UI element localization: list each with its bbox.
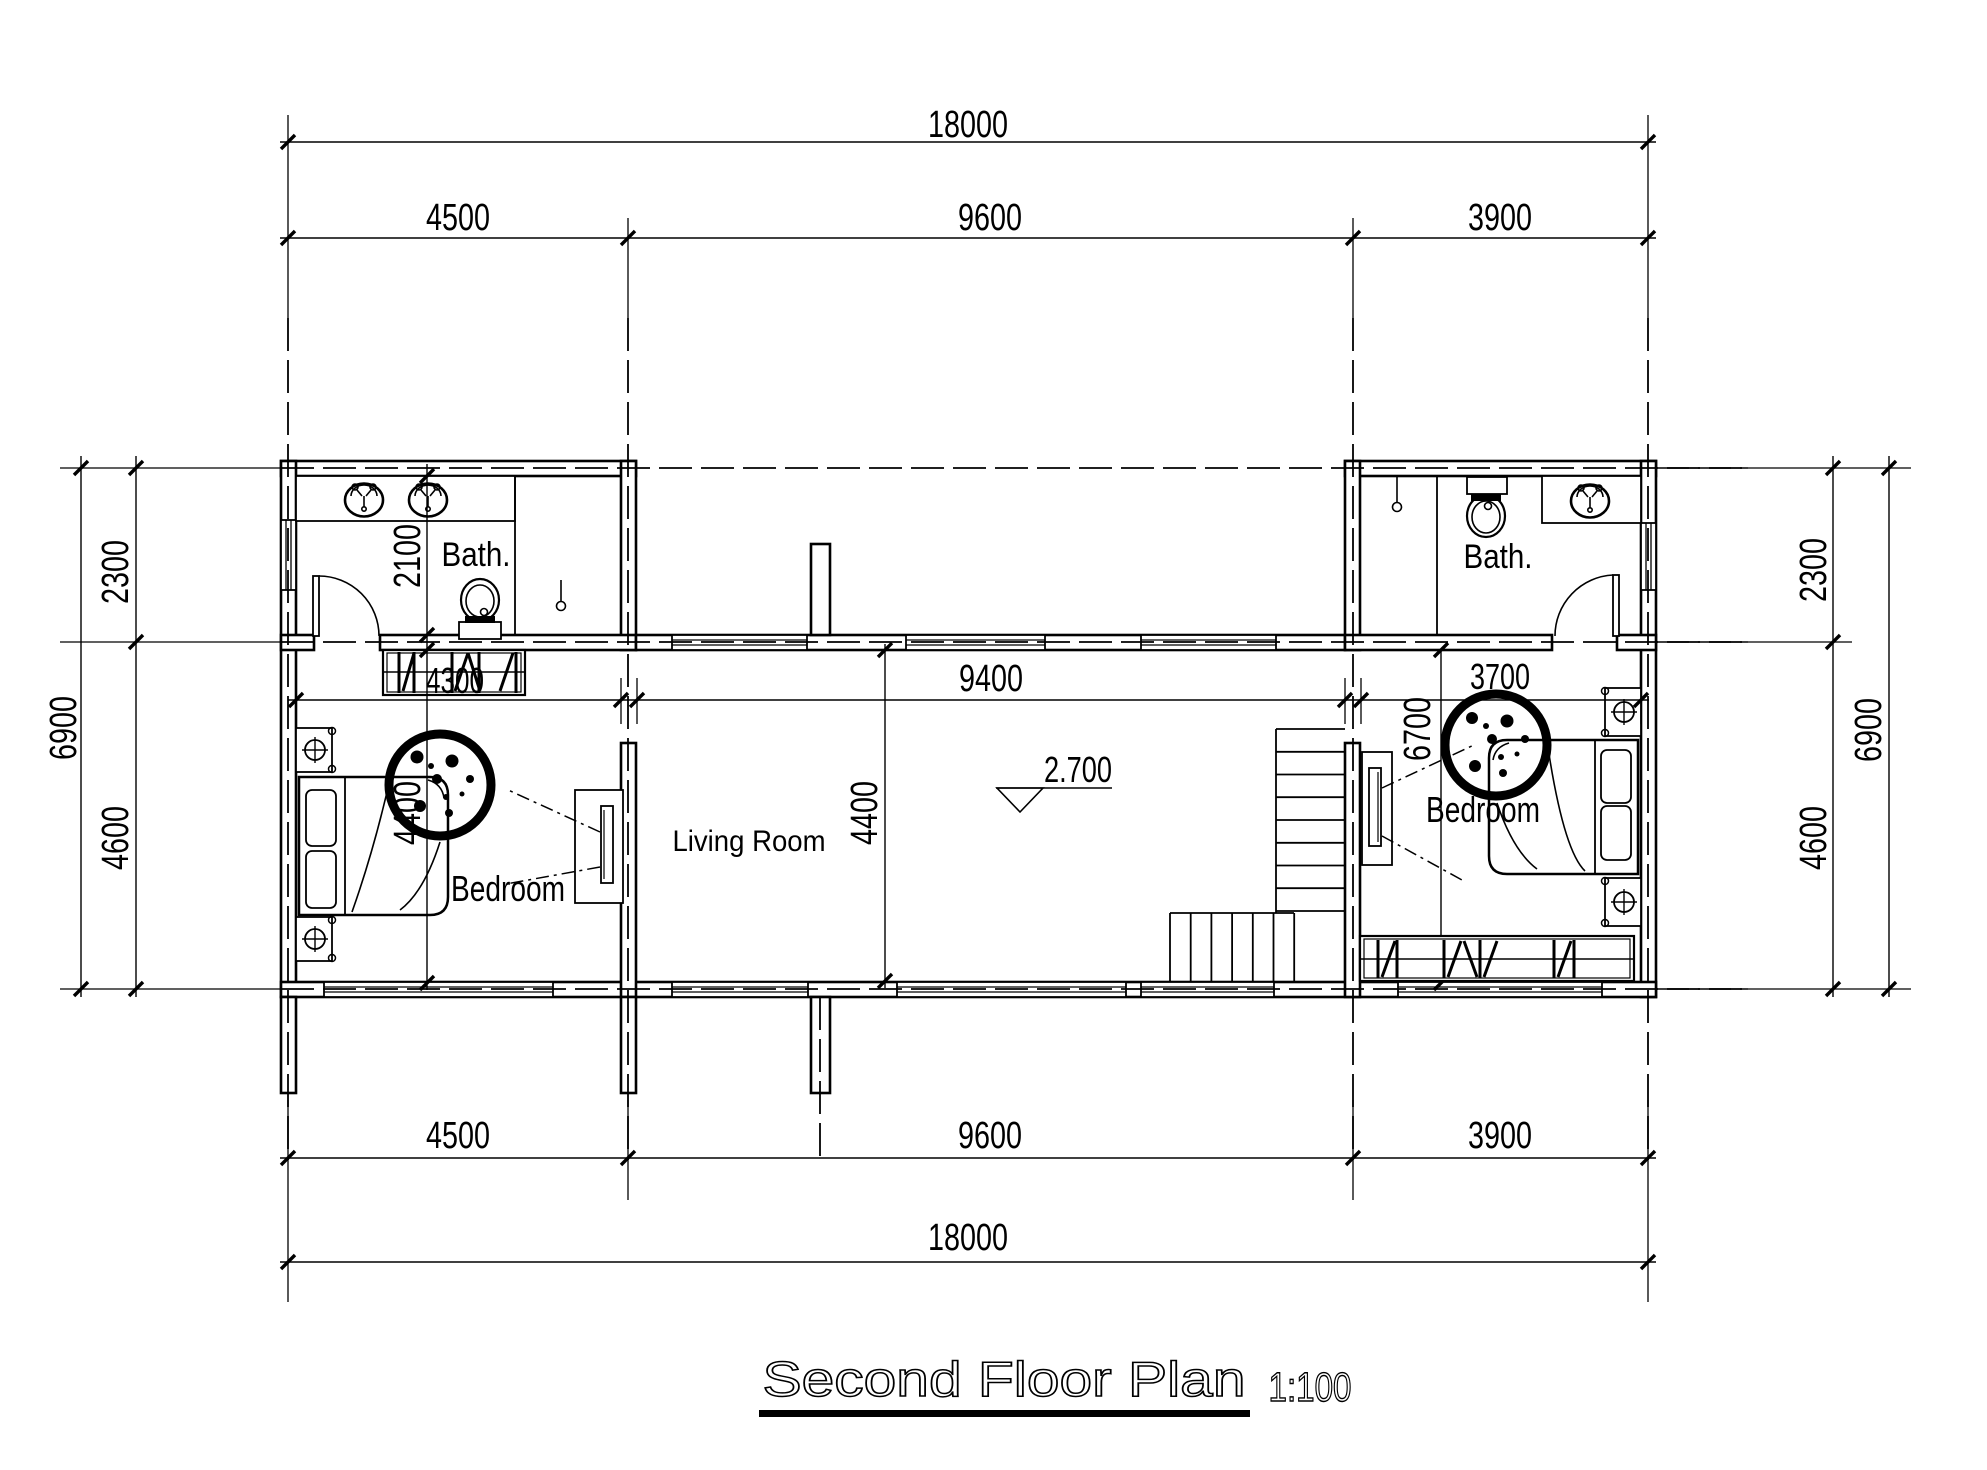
svg-text:Bath.: Bath. — [442, 536, 511, 574]
svg-text:3900: 3900 — [1468, 197, 1532, 239]
svg-text:4500: 4500 — [426, 197, 490, 239]
svg-text:4300: 4300 — [426, 660, 484, 701]
svg-text:Second Floor Plan: Second Floor Plan — [763, 1353, 1246, 1407]
svg-text:4400: 4400 — [387, 781, 429, 845]
svg-text:Bedroom: Bedroom — [1426, 789, 1540, 830]
svg-text:4600: 4600 — [1793, 806, 1835, 870]
svg-text:9400: 9400 — [959, 658, 1023, 700]
svg-text:6900: 6900 — [43, 696, 85, 760]
svg-text:18000: 18000 — [928, 1217, 1008, 1259]
svg-text:2100: 2100 — [387, 524, 429, 588]
svg-text:9600: 9600 — [958, 197, 1022, 239]
svg-text:1:100: 1:100 — [1269, 1364, 1352, 1410]
svg-text:2.700: 2.700 — [1044, 749, 1112, 790]
svg-text:3900: 3900 — [1468, 1115, 1532, 1157]
svg-text:4500: 4500 — [426, 1115, 490, 1157]
svg-text:4600: 4600 — [95, 806, 137, 870]
svg-text:Bath.: Bath. — [1464, 538, 1533, 576]
svg-text:6700: 6700 — [1397, 697, 1439, 761]
svg-text:2300: 2300 — [1793, 538, 1835, 602]
svg-text:Living Room: Living Room — [673, 825, 826, 858]
svg-text:18000: 18000 — [928, 104, 1008, 146]
svg-text:6900: 6900 — [1848, 698, 1890, 762]
svg-text:4400: 4400 — [844, 781, 886, 845]
svg-text:3700: 3700 — [1470, 656, 1530, 697]
svg-text:Bedroom: Bedroom — [451, 868, 565, 909]
svg-text:9600: 9600 — [958, 1115, 1022, 1157]
svg-text:2300: 2300 — [95, 540, 137, 604]
